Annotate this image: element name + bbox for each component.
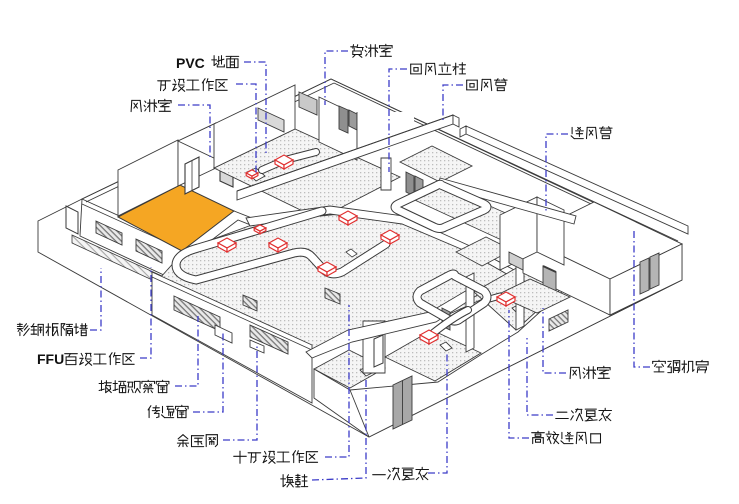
svg-text:PVC: PVC <box>176 55 205 71</box>
svg-text:FFU: FFU <box>37 351 64 367</box>
